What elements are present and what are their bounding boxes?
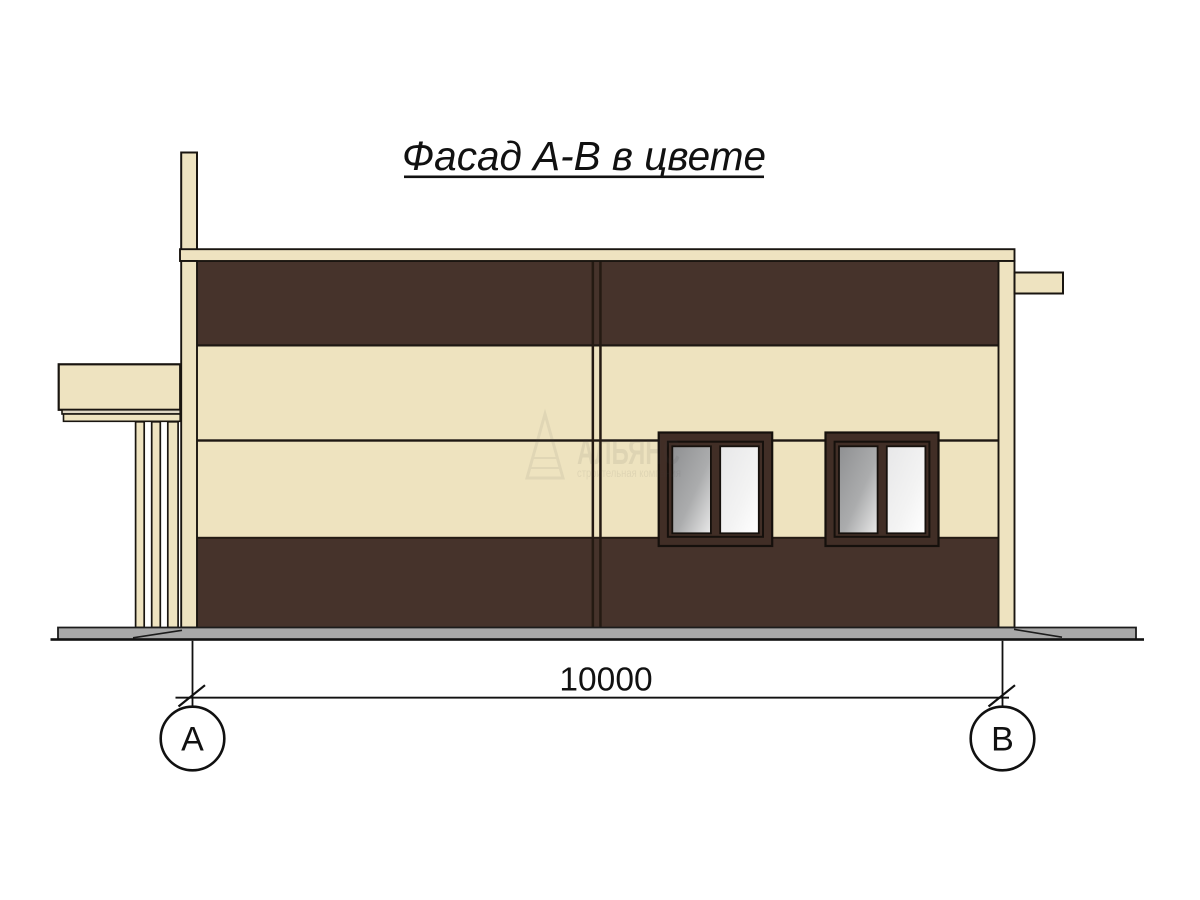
svg-text:10000: 10000: [559, 662, 652, 699]
svg-text:В: В: [991, 721, 1014, 759]
svg-text:строительная компания: строительная компания: [577, 468, 681, 480]
svg-text:Фасад А-В в цвете: Фасад А-В в цвете: [402, 133, 766, 179]
svg-text:А: А: [181, 721, 204, 759]
svg-text:АЛЬЯНС: АЛЬЯНС: [577, 431, 680, 472]
